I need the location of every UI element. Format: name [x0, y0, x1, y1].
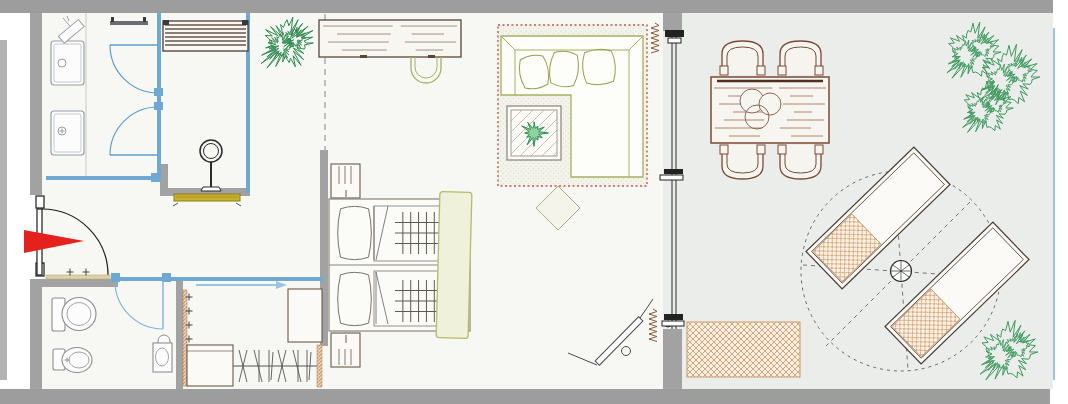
- outdoor-rug[interactable]: [687, 322, 800, 377]
- louver-wardrobe[interactable]: [242, 20, 248, 25]
- bidet[interactable]: [53, 348, 92, 373]
- dining-chair-1[interactable]: [720, 41, 765, 75]
- glass-partitions: [111, 273, 120, 282]
- walls: [30, 13, 42, 195]
- sink-bottom[interactable]: [51, 111, 84, 155]
- floor-lamp[interactable]: [201, 187, 221, 191]
- entry-door[interactable]: [36, 196, 44, 208]
- window-wall-glass[interactable]: [662, 321, 684, 326]
- glass-partitions: [157, 13, 161, 181]
- bed-throw[interactable]: [436, 192, 472, 339]
- towel-rail: [143, 17, 146, 22]
- window-wall-glass[interactable]: [660, 175, 683, 180]
- dining-chair-4[interactable]: [778, 145, 823, 179]
- window-wall-glass[interactable]: [664, 169, 683, 174]
- nightstand-bottom[interactable]: [331, 333, 360, 367]
- coffee-table[interactable]: [507, 106, 561, 160]
- dining-chair-1[interactable]: [720, 41, 765, 75]
- bathroom-door-left[interactable]: [154, 88, 163, 96]
- entry-walkway: [7, 13, 30, 389]
- sink-top[interactable]: [51, 41, 84, 85]
- outdoor-rug[interactable]: [687, 322, 800, 377]
- walls: [42, 279, 118, 287]
- glass-partitions: [46, 176, 160, 180]
- walls: [0, 40, 7, 380]
- desk[interactable]: [319, 20, 461, 57]
- walls: [0, 0, 1053, 13]
- closet-cabinet[interactable]: [187, 345, 233, 386]
- desk[interactable]: [319, 20, 461, 58]
- dining-chair-4[interactable]: [778, 145, 823, 179]
- walls: [663, 13, 682, 31]
- floor-plan-drawing: [0, 0, 1068, 404]
- dining-chair-2[interactable]: [778, 41, 823, 75]
- window-wall-glass[interactable]: [664, 314, 683, 320]
- bathroom-door-right[interactable]: [154, 102, 163, 110]
- nightstand-top[interactable]: [331, 164, 360, 198]
- sink-bottom[interactable]: [51, 111, 84, 155]
- bench-mat: [174, 194, 240, 201]
- walls: [176, 281, 183, 389]
- dining-chair-3[interactable]: [720, 145, 765, 179]
- walls: [663, 329, 682, 389]
- desk[interactable]: [428, 55, 435, 58]
- closet-dresser[interactable]: [288, 289, 322, 342]
- window-wall-glass[interactable]: [665, 30, 684, 37]
- towel-rail: [111, 17, 114, 22]
- sink-top[interactable]: [51, 41, 84, 85]
- desk[interactable]: [360, 55, 367, 58]
- glass-partitions: [115, 277, 323, 281]
- bed-throw[interactable]: [436, 192, 472, 339]
- entry-walkway: [7, 13, 30, 389]
- louver-wardrobe[interactable]: [163, 20, 169, 25]
- dining-chair-2[interactable]: [778, 41, 823, 75]
- closet-hatched-walls: [183, 290, 187, 386]
- dining-table[interactable]: [711, 77, 829, 143]
- louver-wardrobe[interactable]: [163, 20, 248, 51]
- toilet[interactable]: [52, 298, 96, 332]
- walls: [0, 389, 1050, 404]
- closet-hatched-walls: [317, 345, 322, 387]
- window-wall-glass[interactable]: [668, 38, 681, 43]
- towel-rail: [110, 21, 148, 25]
- glass-partitions: [162, 273, 171, 282]
- closet-dresser[interactable]: [288, 289, 322, 342]
- dining-table[interactable]: [759, 93, 781, 115]
- entry-threshold: [46, 275, 110, 279]
- floor-plan-canvas: [0, 0, 1068, 404]
- walls: [30, 279, 42, 389]
- glass-partitions: [151, 173, 160, 182]
- dining-chair-3[interactable]: [720, 145, 765, 179]
